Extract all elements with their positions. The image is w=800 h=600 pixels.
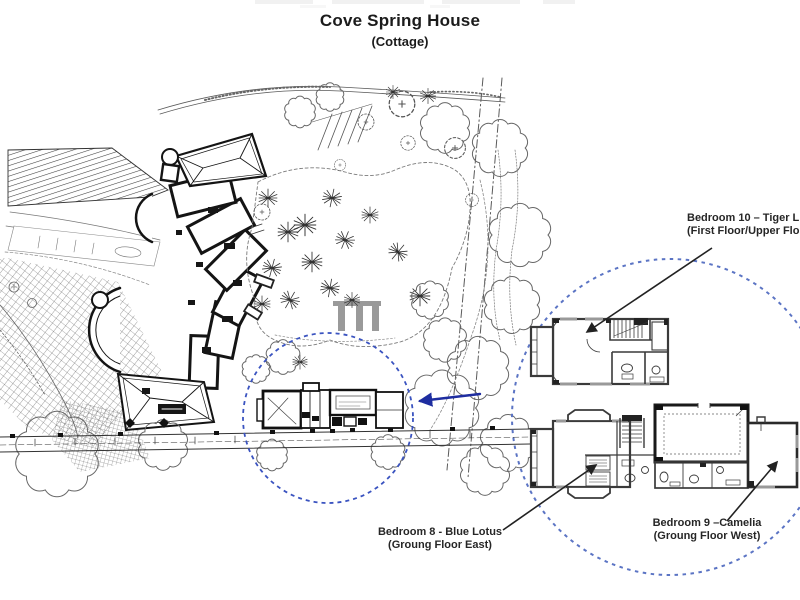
page-subtitle: (Cottage) xyxy=(0,34,800,49)
plaza-crosshatch xyxy=(0,258,162,472)
bedroom10-label-line2: (First Floor/Upper Flo xyxy=(687,225,799,238)
site-plan xyxy=(0,78,551,503)
bedroom10-label: Bedroom 10 – Tiger L (First Floor/Upper … xyxy=(687,212,799,237)
bedroom9-label: Bedroom 9 –Camelia (Groung Floor West) xyxy=(628,517,786,542)
bedroom9-label-line2: (Groung Floor West) xyxy=(628,530,786,543)
bedroom10-label-line1: Bedroom 10 – Tiger L xyxy=(687,212,799,225)
site-top-path xyxy=(158,86,505,114)
cottage-building xyxy=(257,383,403,434)
garden-structure xyxy=(333,301,381,331)
bedroom8-label-line1: Bedroom 8 - Blue Lotus xyxy=(357,526,523,539)
floor-plan-lower xyxy=(531,402,797,498)
bedroom9-label-line1: Bedroom 9 –Camelia xyxy=(628,517,786,530)
shrubs xyxy=(254,91,478,220)
floor-plan-upper xyxy=(531,318,668,384)
page: Cove Spring House (Cottage) Bedroom 10 –… xyxy=(0,0,800,600)
bedroom8-label: Bedroom 8 - Blue Lotus (Groung Floor Eas… xyxy=(357,526,523,551)
plan-figure xyxy=(0,0,800,600)
bedroom8-label-line2: (Groung Floor East) xyxy=(357,539,523,552)
parking-stripes xyxy=(312,104,372,150)
page-title: Cove Spring House xyxy=(0,11,800,31)
cropped-header-smudge xyxy=(255,0,575,8)
terrace-walk xyxy=(8,226,160,266)
